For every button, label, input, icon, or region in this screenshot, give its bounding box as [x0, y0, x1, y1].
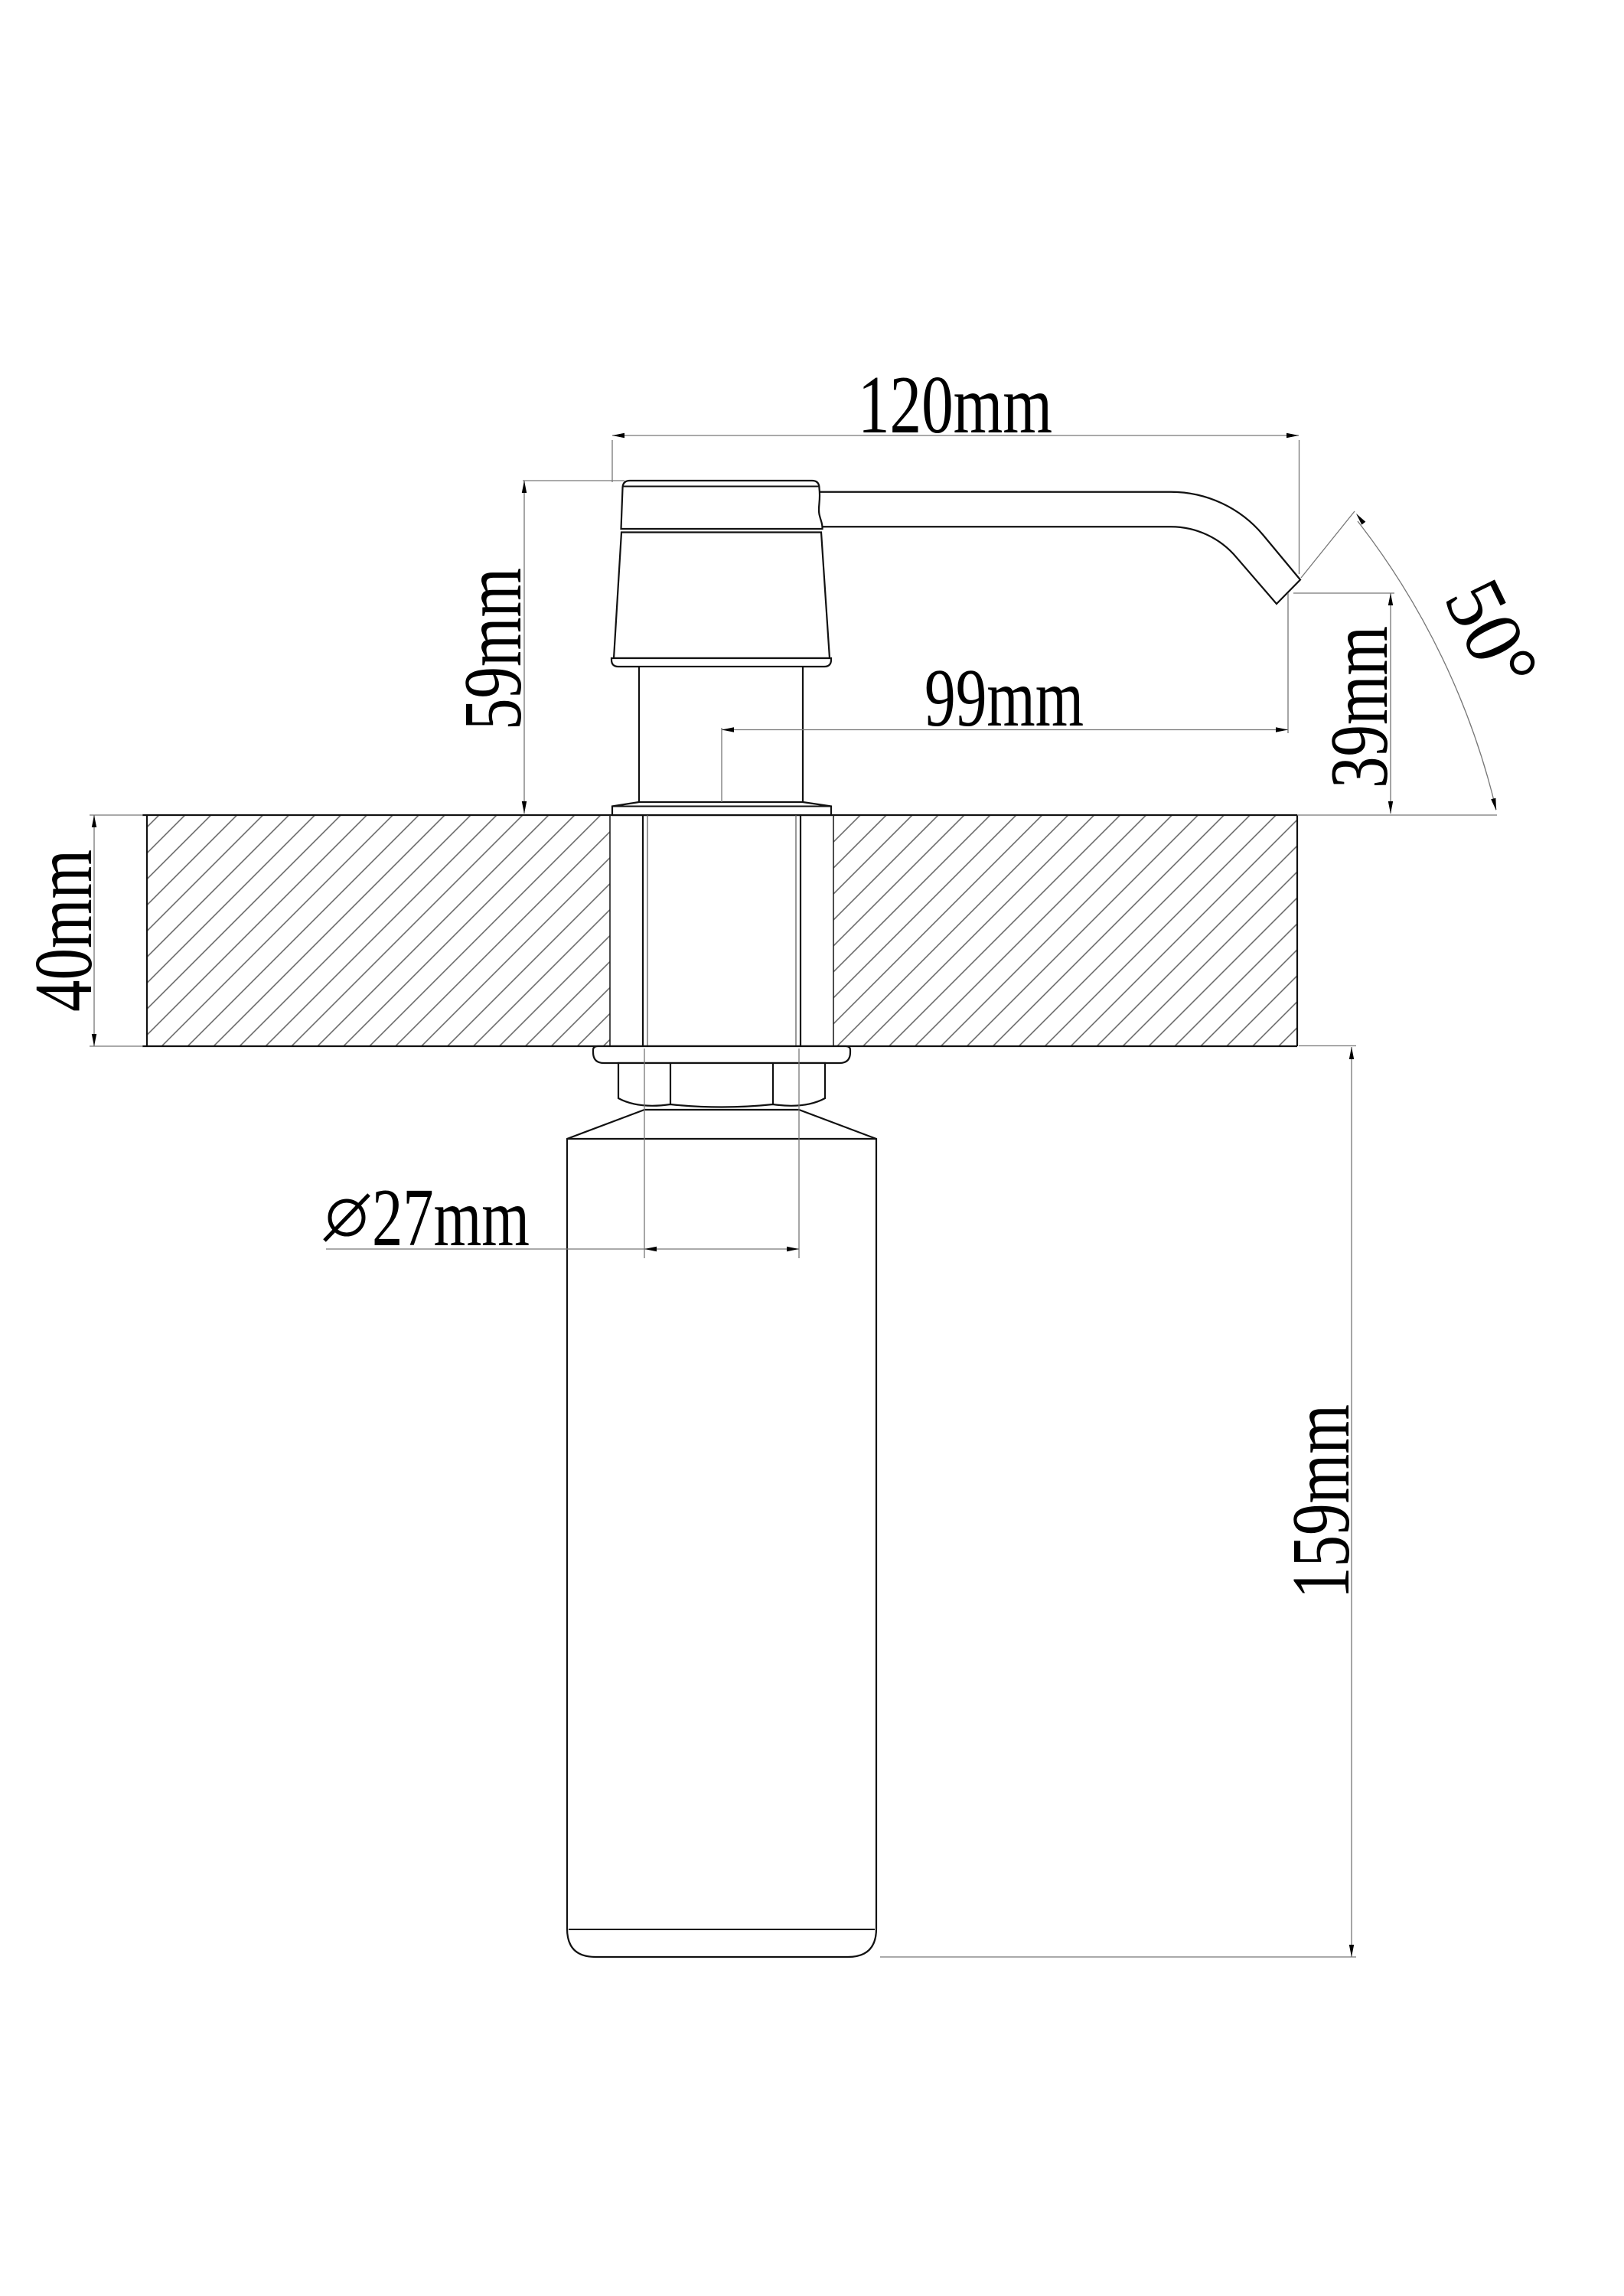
svg-text:39mm: 39mm — [1314, 626, 1405, 788]
svg-text:27mm: 27mm — [372, 1172, 530, 1264]
svg-text:40mm: 40mm — [18, 850, 109, 1012]
svg-text:99mm: 99mm — [925, 653, 1084, 744]
svg-text:120mm: 120mm — [858, 360, 1052, 451]
svg-text:59mm: 59mm — [448, 568, 539, 730]
svg-text:159mm: 159mm — [1276, 1404, 1367, 1599]
